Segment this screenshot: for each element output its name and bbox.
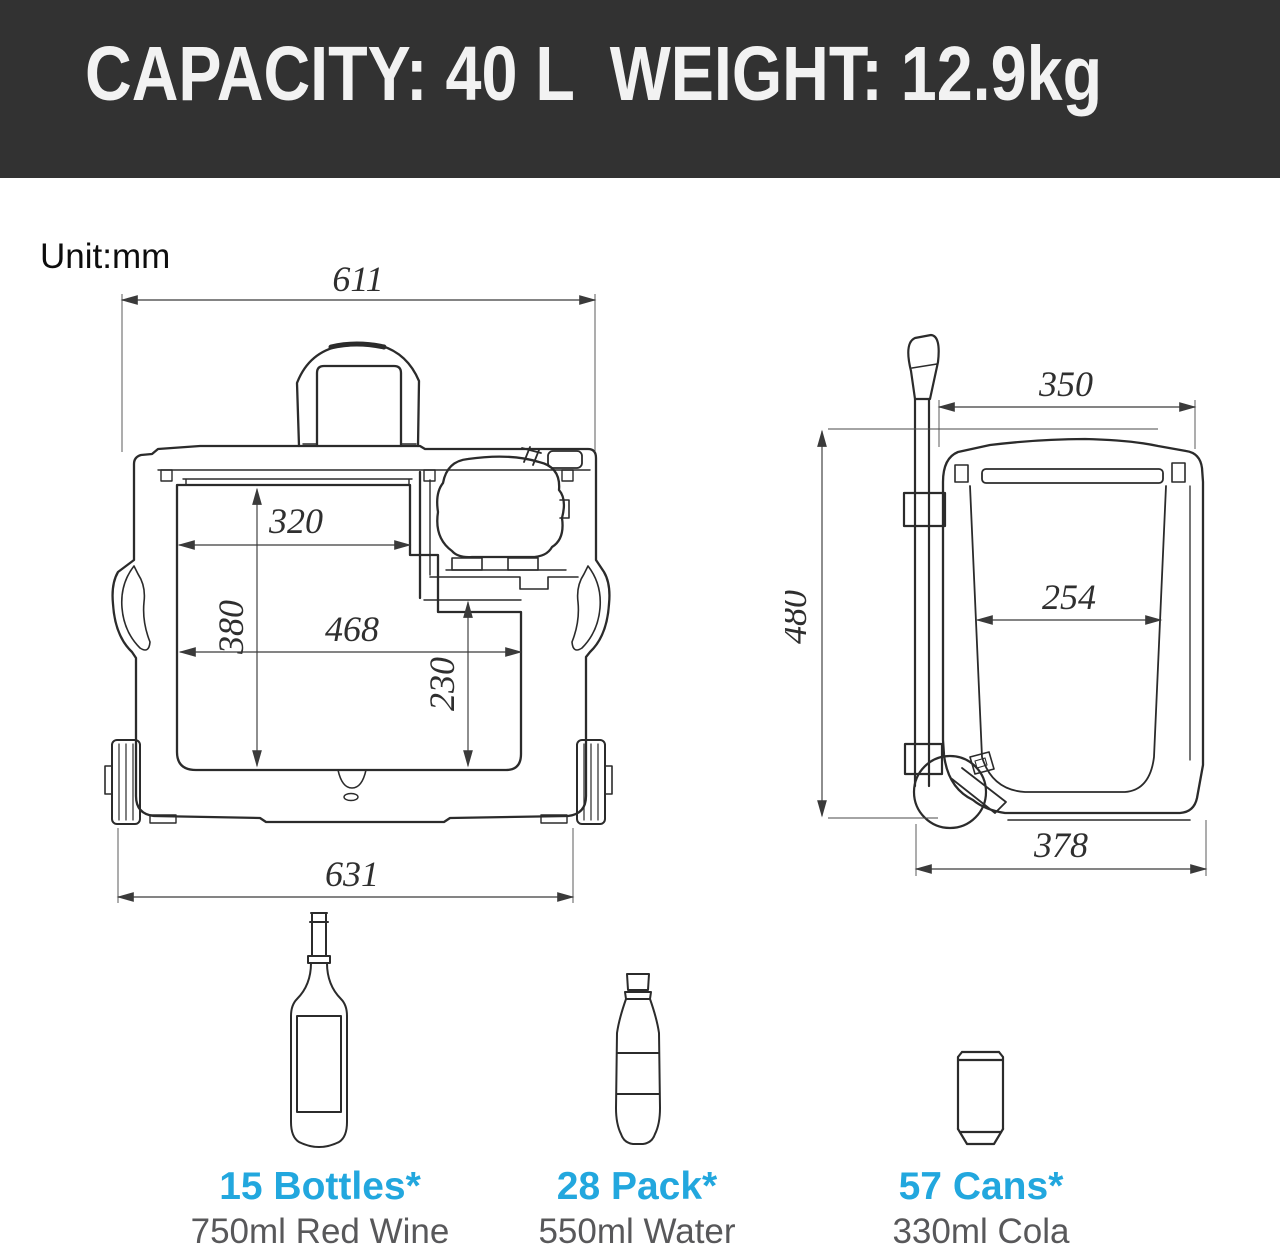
cooler-side-outline [904, 439, 1203, 828]
top-banner: CAPACITY: 40 L WEIGHT: 12.9kg [0, 0, 1280, 178]
side-wheel [914, 756, 986, 828]
pack-count-label: 28 Pack* [487, 1167, 787, 1206]
handle-sleeve [904, 493, 945, 526]
side-view-dimensions: 350 480 254 378 [785, 364, 1206, 876]
dimension-side-bottom-width: 378 [1033, 825, 1088, 865]
dimension-side-inner-width: 254 [1042, 577, 1096, 617]
cans-desc-label: 330ml Cola [831, 1214, 1131, 1249]
dimension-bottom-width: 631 [325, 854, 379, 894]
cola-can-icon [958, 1052, 1003, 1144]
inner-liner [970, 486, 1166, 792]
lid-seal-lines [158, 470, 590, 485]
vent-grille [548, 451, 582, 468]
dimension-right-inner-height: 230 [422, 657, 462, 711]
compressor-body [437, 457, 564, 558]
wheel-right [577, 740, 612, 824]
telescopic-handle [908, 335, 938, 786]
bottles-count-label: 15 Bottles* [170, 1167, 470, 1206]
dimension-inner-width-lower: 468 [325, 609, 379, 649]
front-view-drawing: 611 320 380 468 230 631 [95, 262, 640, 915]
wine-bottle-icon [291, 913, 347, 1147]
pack-desc-label: 550ml Water [487, 1214, 787, 1249]
dimension-inner-height: 380 [211, 600, 251, 655]
dimension-side-height: 480 [785, 590, 814, 644]
banner-title: CAPACITY: 40 L WEIGHT: 12.9kg [85, 36, 1102, 113]
dimension-inner-width-upper: 320 [268, 501, 323, 541]
dimension-top-width: 611 [332, 262, 383, 299]
wheel-left [105, 740, 140, 824]
front-view-dimensions: 611 320 380 468 230 631 [118, 262, 595, 903]
dimension-side-top-width: 350 [1038, 364, 1093, 404]
bottles-desc-label: 750ml Red Wine [170, 1214, 470, 1249]
carry-handle [297, 344, 419, 446]
capacity-items-drawing [285, 905, 1010, 1150]
lid-gasket [982, 469, 1163, 483]
cans-count-label: 57 Cans* [831, 1167, 1131, 1206]
water-bottle-icon [616, 974, 660, 1144]
side-view-drawing: 350 480 254 378 [785, 330, 1230, 885]
